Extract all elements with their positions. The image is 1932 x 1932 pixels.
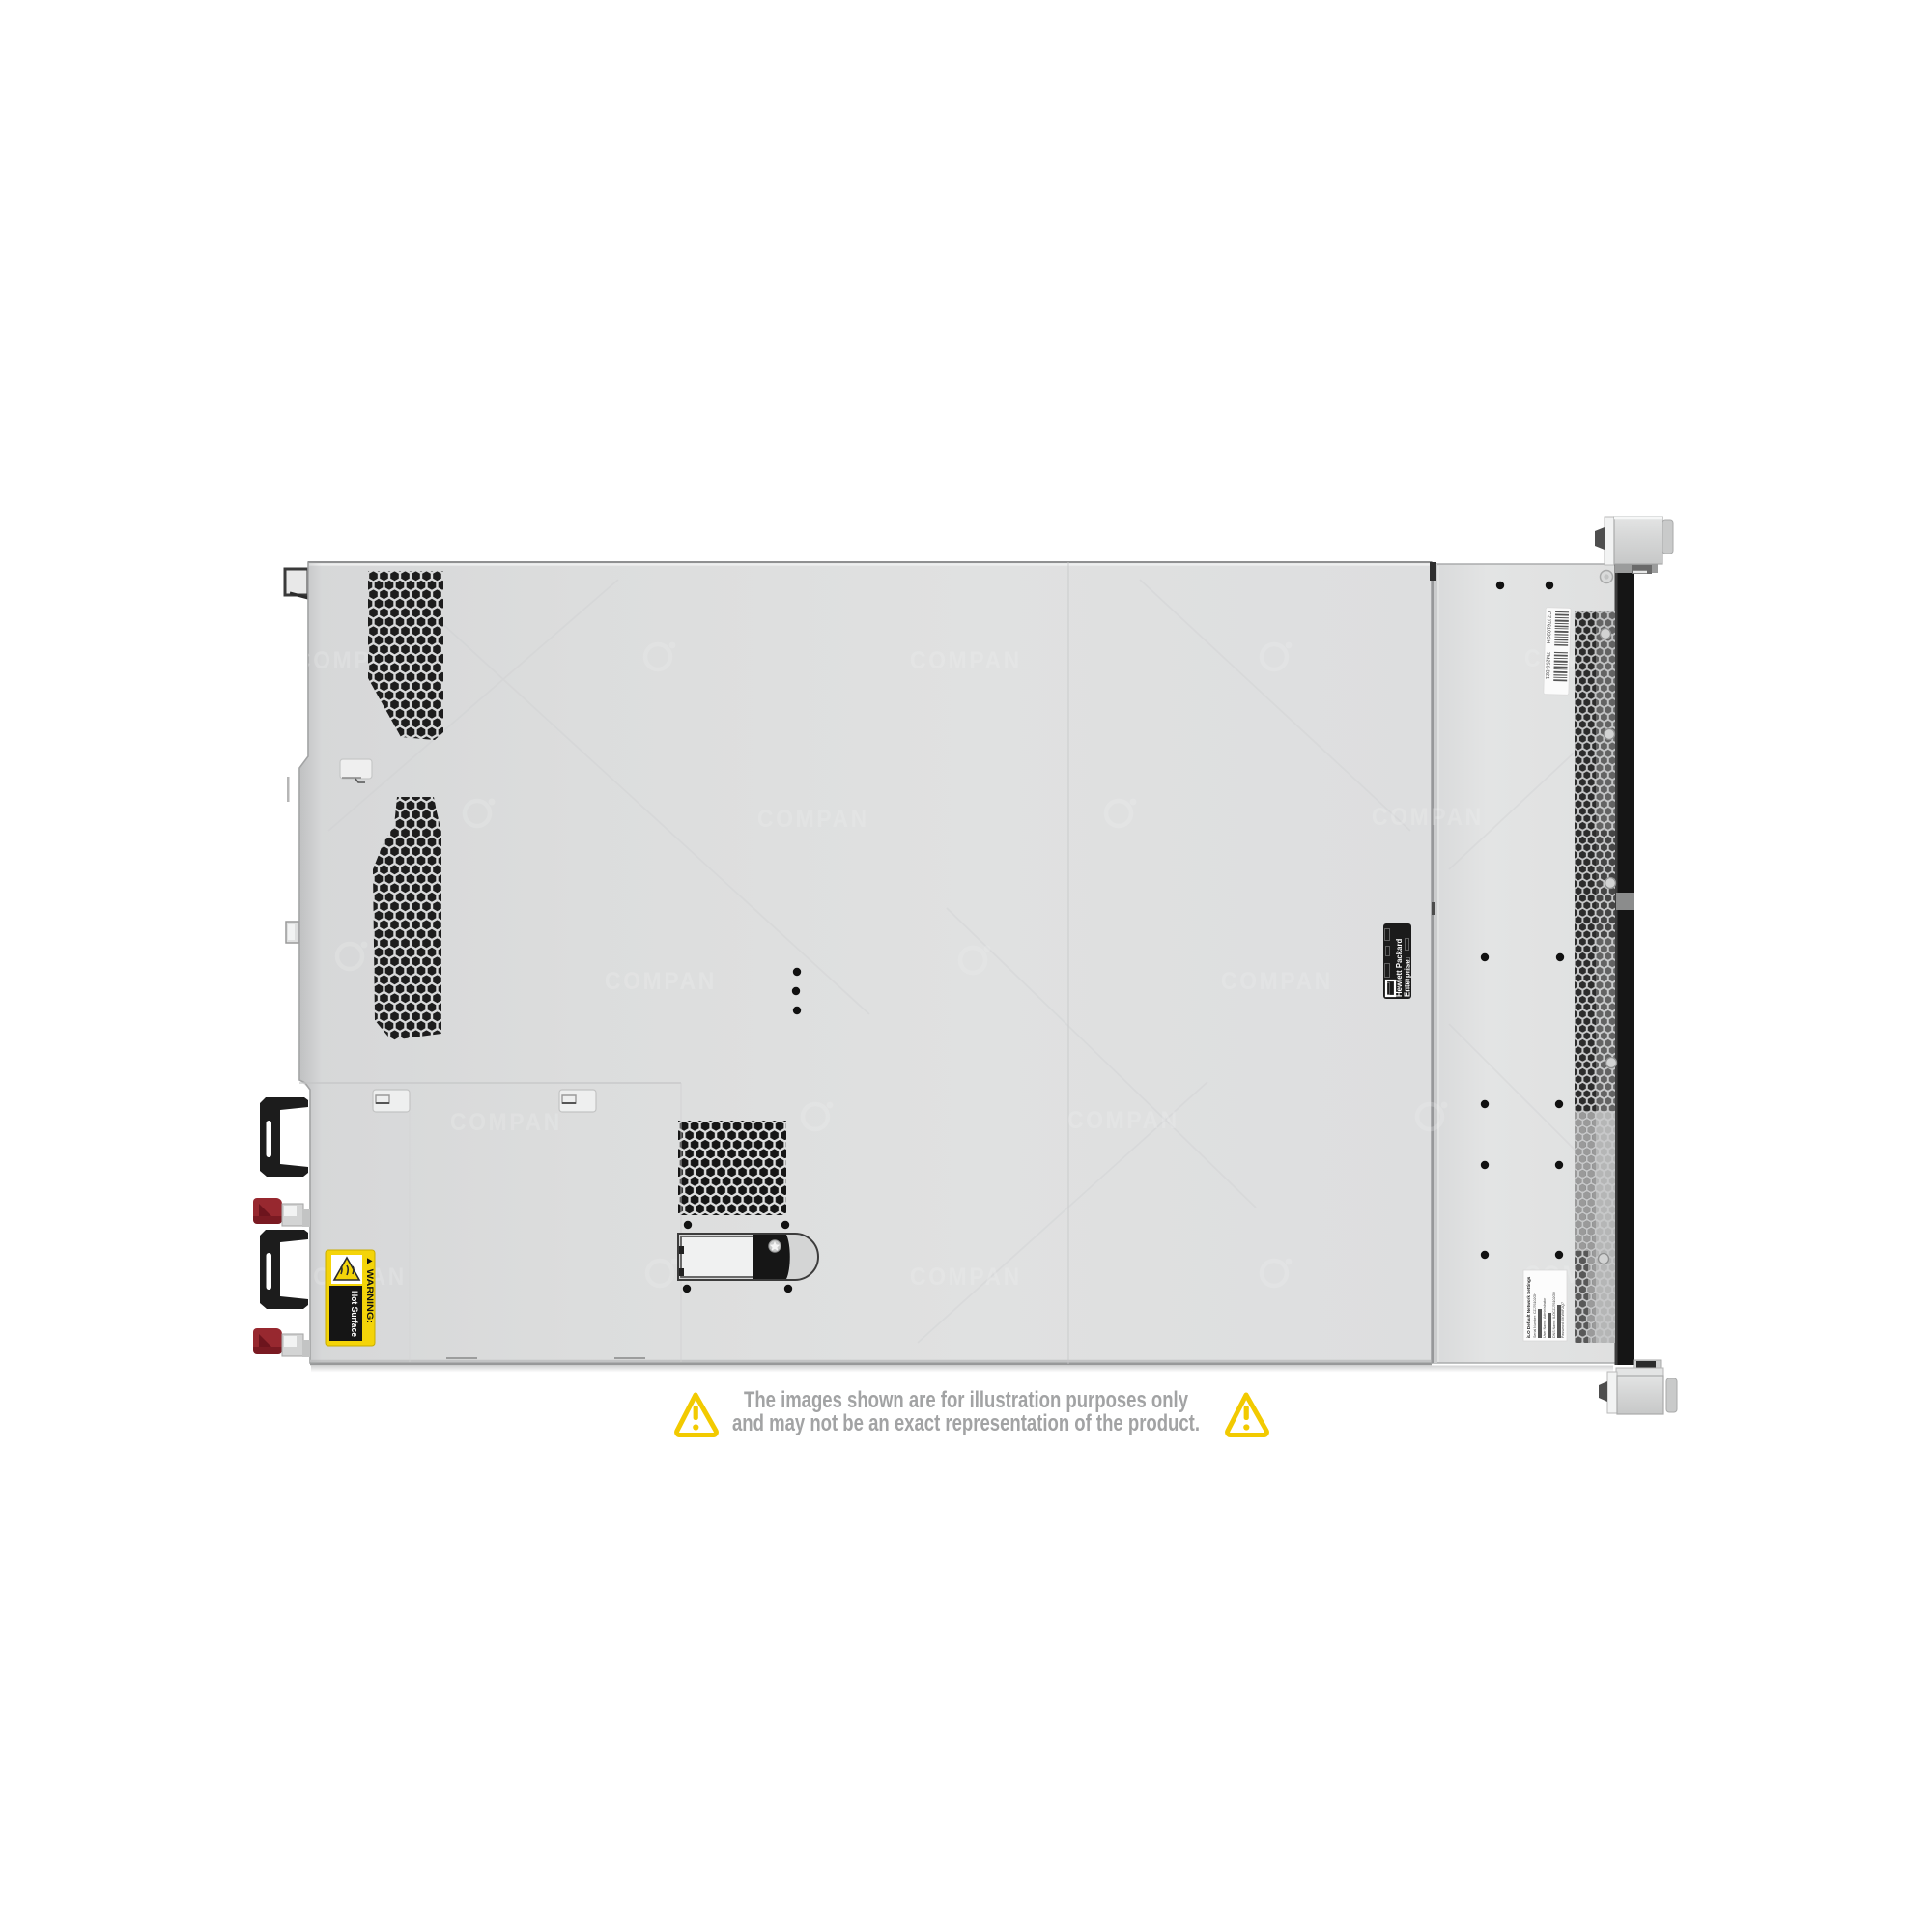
svg-text:COMPAN: COMPAN [910, 647, 1022, 674]
svg-text:DNS Name: ILOCZJ76102GH: DNS Name: ILOCZJ76102GH [1552, 1292, 1556, 1338]
svg-text:iLO Default Network Settings: iLO Default Network Settings [1526, 1276, 1531, 1338]
svg-text:COMPAN: COMPAN [757, 806, 869, 833]
svg-text:Password: XKW6F2Q7: Password: XKW6F2Q7 [1561, 1302, 1565, 1338]
svg-text:User Name: Administrator: User Name: Administrator [1543, 1297, 1547, 1338]
svg-text:COMPAN: COMPAN [450, 1109, 562, 1136]
svg-text:Serial Number: CZJ76102GH: Serial Number: CZJ76102GH [1533, 1293, 1537, 1338]
svg-text:COMPAN: COMPAN [1221, 968, 1333, 995]
svg-text:The images shown are for illus: The images shown are for illustration pu… [744, 1387, 1189, 1413]
svg-text:COMPAN: COMPAN [1372, 804, 1484, 831]
svg-text:▲ WARNING:: ▲ WARNING: [364, 1256, 375, 1323]
svg-text:COMPAN: COMPAN [605, 968, 717, 995]
svg-text:7M256-B21: 7M256-B21 [1544, 652, 1550, 680]
svg-text:COMPAN: COMPAN [1067, 1107, 1179, 1134]
svg-text:Enterprise: Enterprise [1404, 959, 1412, 997]
svg-text:Hot Surface: Hot Surface [350, 1291, 359, 1337]
svg-text:and may not be an exact repres: and may not be an exact representation o… [732, 1410, 1200, 1436]
svg-text:CZJ76102GH: CZJ76102GH [1545, 611, 1551, 644]
svg-text:COMPAN: COMPAN [910, 1264, 1022, 1291]
